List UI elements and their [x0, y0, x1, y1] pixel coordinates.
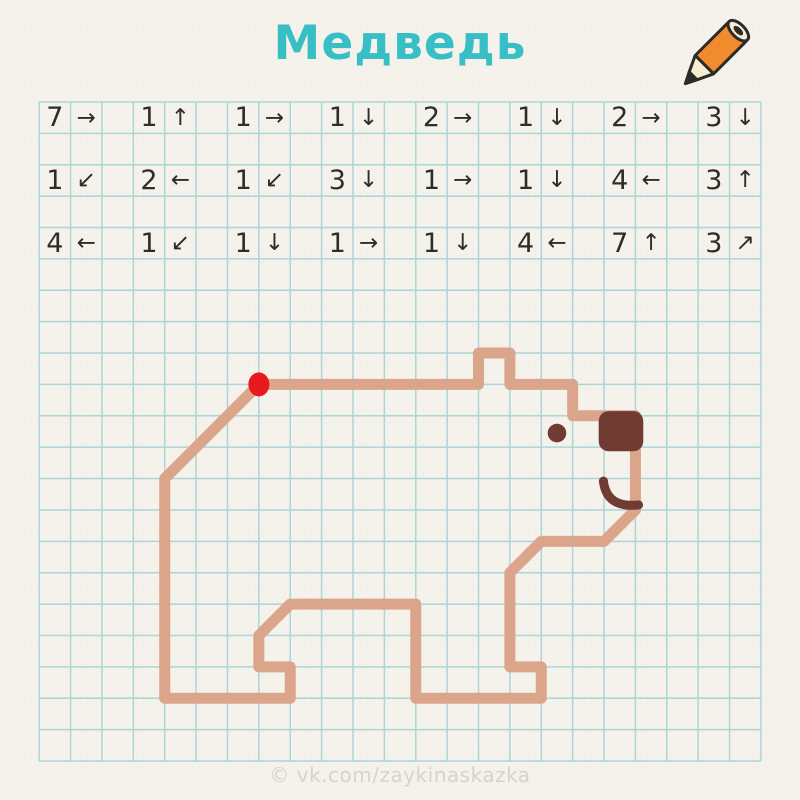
- instruction-count: 1: [227, 228, 258, 259]
- instruction-count: 1: [227, 102, 258, 133]
- bear-eye: [548, 424, 567, 443]
- instruction-count: 1: [39, 165, 70, 196]
- instruction-arrow-right: →: [353, 228, 384, 259]
- instruction-arrow-right: →: [259, 102, 290, 133]
- instruction-count: 7: [39, 102, 70, 133]
- instruction-count: 2: [416, 102, 447, 133]
- worksheet-scene: [0, 0, 800, 800]
- instruction-arrow-left: ←: [71, 228, 102, 259]
- instruction-arrow-up: ↑: [165, 102, 196, 133]
- graph-paper-grid: [39, 102, 761, 761]
- instruction-count: 1: [510, 102, 541, 133]
- instruction-arrow-up: ↑: [635, 228, 666, 259]
- instruction-count: 2: [604, 102, 635, 133]
- instruction-arrow-down: ↓: [541, 165, 572, 196]
- instruction-arrow-down: ↓: [353, 102, 384, 133]
- instruction-count: 4: [39, 228, 70, 259]
- instruction-arrow-down: ↓: [353, 165, 384, 196]
- instruction-arrow-down: ↓: [541, 102, 572, 133]
- instruction-arrow-left: ←: [165, 165, 196, 196]
- instruction-arrow-down: ↓: [447, 228, 478, 259]
- instruction-count: 3: [698, 102, 729, 133]
- instruction-count: 1: [416, 228, 447, 259]
- instruction-count: 1: [227, 165, 258, 196]
- instruction-arrow-left: ←: [541, 228, 572, 259]
- instruction-count: 1: [322, 228, 353, 259]
- instruction-count: 3: [322, 165, 353, 196]
- instruction-count: 2: [133, 165, 164, 196]
- bear-outline-path: [165, 353, 636, 698]
- instruction-arrow-down-left: ↙: [71, 165, 102, 196]
- instruction-count: 7: [604, 228, 635, 259]
- instruction-arrow-right: →: [447, 102, 478, 133]
- instruction-arrow-right: →: [447, 165, 478, 196]
- instruction-count: 4: [604, 165, 635, 196]
- instruction-arrow-down-left: ↙: [259, 165, 290, 196]
- watermark: © vk.com/zaykinaskazka: [0, 763, 800, 787]
- instruction-arrow-up: ↑: [730, 165, 761, 196]
- instruction-arrow-down: ↓: [259, 228, 290, 259]
- instruction-arrow-left: ←: [635, 165, 666, 196]
- start-dot: [248, 372, 269, 396]
- instruction-count: 1: [133, 102, 164, 133]
- instruction-arrow-right: →: [71, 102, 102, 133]
- instruction-count: 3: [698, 165, 729, 196]
- instruction-count: 1: [322, 102, 353, 133]
- instruction-count: 1: [133, 228, 164, 259]
- instruction-count: 4: [510, 228, 541, 259]
- instruction-arrow-right: →: [635, 102, 666, 133]
- bear-nose: [599, 411, 644, 451]
- instruction-arrow-down: ↓: [730, 102, 761, 133]
- instruction-arrow-up-right: ↗: [730, 228, 761, 259]
- instruction-arrow-down-left: ↙: [165, 228, 196, 259]
- instruction-count: 1: [510, 165, 541, 196]
- instruction-count: 3: [698, 228, 729, 259]
- instruction-count: 1: [416, 165, 447, 196]
